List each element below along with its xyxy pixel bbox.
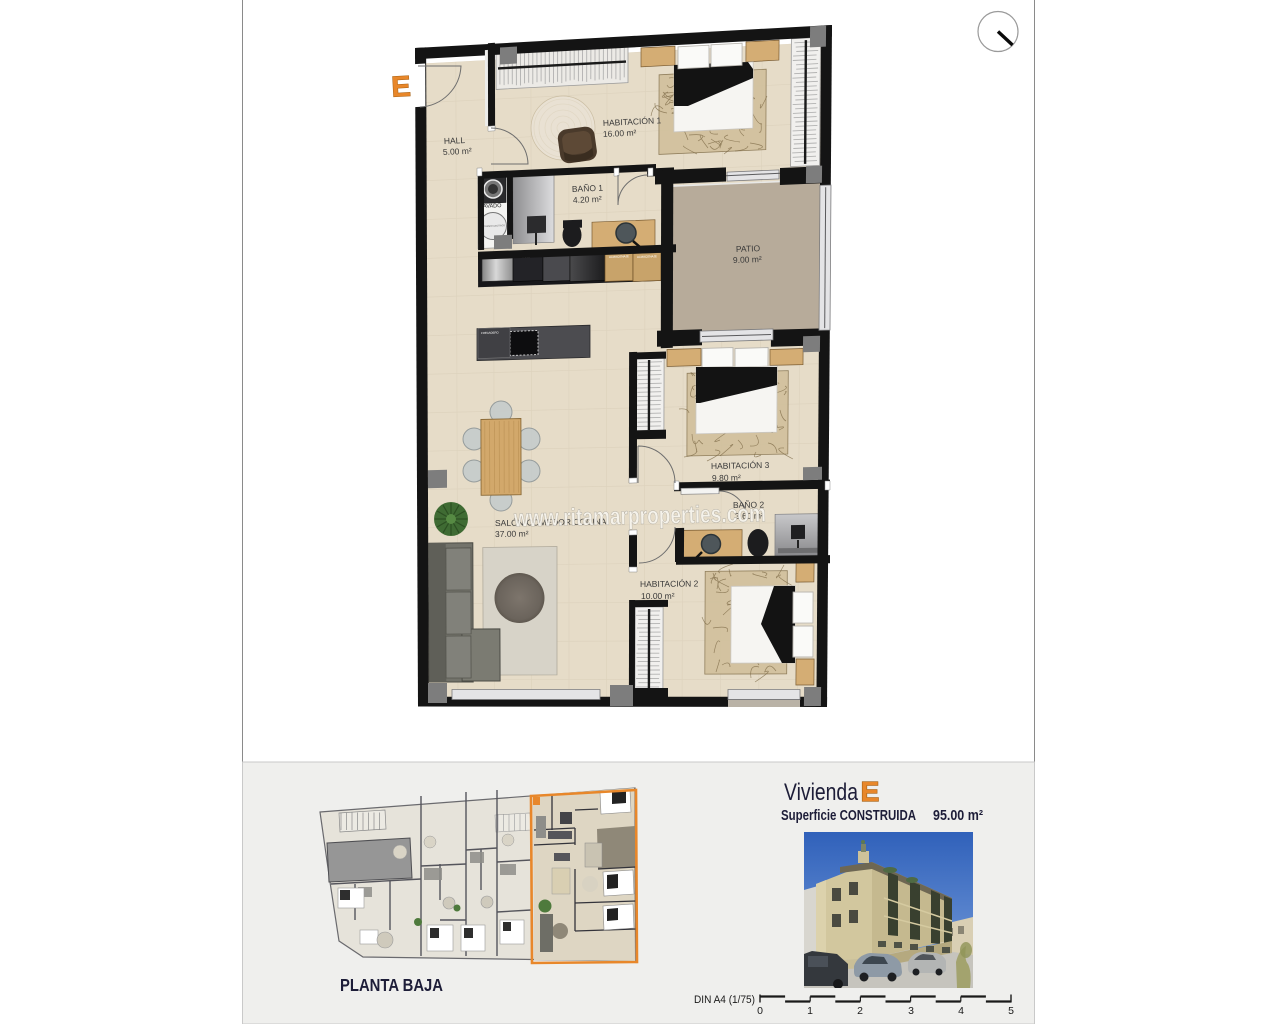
svg-text:4: 4 [958, 1005, 964, 1017]
svg-text:10.00 m²: 10.00 m² [641, 591, 675, 601]
svg-text:9.80 m²: 9.80 m² [712, 472, 741, 483]
svg-text:www.ritamarproperties.com: www.ritamarproperties.com [513, 500, 766, 532]
svg-text:5.00 m²: 5.00 m² [443, 146, 472, 157]
svg-text:Vivienda: Vivienda [784, 779, 859, 806]
svg-text:0: 0 [757, 1005, 763, 1017]
svg-text:HABITACIÓN 3: HABITACIÓN 3 [711, 460, 770, 471]
svg-text:DIN A4 (1/75): DIN A4 (1/75) [694, 994, 755, 1006]
svg-text:5: 5 [1008, 1005, 1014, 1017]
svg-text:2: 2 [857, 1005, 863, 1017]
svg-text:HALL: HALL [444, 135, 466, 146]
svg-text:FREGADERO: FREGADERO [481, 330, 500, 335]
svg-text:HABITACIÓN 2: HABITACIÓN 2 [640, 578, 699, 589]
svg-text:PATIO: PATIO [736, 243, 761, 254]
svg-text:E: E [391, 71, 412, 104]
svg-text:4.20 m²: 4.20 m² [573, 194, 602, 205]
svg-text:Superficie CONSTRUIDA: Superficie CONSTRUIDA [781, 808, 916, 824]
svg-text:1: 1 [807, 1005, 813, 1017]
svg-text:9.00 m²: 9.00 m² [733, 254, 762, 265]
svg-text:BAÑO 1: BAÑO 1 [572, 183, 604, 194]
svg-text:16.00 m²: 16.00 m² [603, 127, 637, 139]
svg-text:95.00 m²: 95.00 m² [933, 808, 983, 824]
svg-text:ALMACENAJE: ALMACENAJE [609, 254, 629, 259]
svg-text:3: 3 [908, 1005, 914, 1017]
svg-text:E: E [861, 776, 880, 807]
svg-text:PLANTA BAJA: PLANTA BAJA [340, 975, 443, 995]
svg-text:ALMACENAJE: ALMACENAJE [637, 254, 657, 259]
